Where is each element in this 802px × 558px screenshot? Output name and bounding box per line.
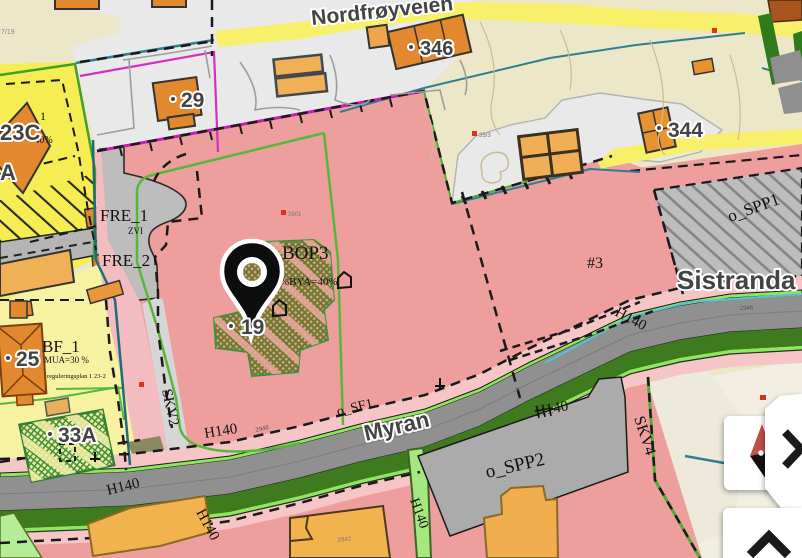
svg-text:FRE_2: FRE_2 <box>102 251 150 270</box>
svg-text:ZVI: ZVI <box>128 226 143 236</box>
svg-text:7/19: 7/19 <box>1 29 15 36</box>
svg-text:#3: #3 <box>587 255 603 272</box>
svg-text:29: 29 <box>181 89 204 112</box>
svg-text:25: 25 <box>16 348 40 371</box>
svg-text:BOP3: BOP3 <box>282 243 328 264</box>
svg-text:346: 346 <box>420 38 453 60</box>
svg-text:1: 1 <box>40 109 46 123</box>
svg-text:%BYA=40%: %BYA=40% <box>280 276 338 288</box>
svg-text:A: A <box>0 160 16 185</box>
svg-text:35/3: 35/3 <box>479 133 491 139</box>
svg-text:FRE_1: FRE_1 <box>100 206 148 225</box>
svg-text:344: 344 <box>668 119 703 142</box>
svg-text:MUA=30 %: MUA=30 % <box>44 355 89 365</box>
svg-text:Sistranda: Sistranda <box>677 265 796 295</box>
svg-text:23C: 23C <box>0 120 40 145</box>
svg-text:2946: 2946 <box>740 305 754 312</box>
svg-text:19: 19 <box>241 316 264 339</box>
svg-text:33A: 33A <box>58 424 97 447</box>
svg-text:3901: 3901 <box>288 212 302 218</box>
svg-text:reguleringsplan 1 23-2: reguleringsplan 1 23-2 <box>47 373 106 380</box>
svg-text:BF_1: BF_1 <box>42 337 80 356</box>
